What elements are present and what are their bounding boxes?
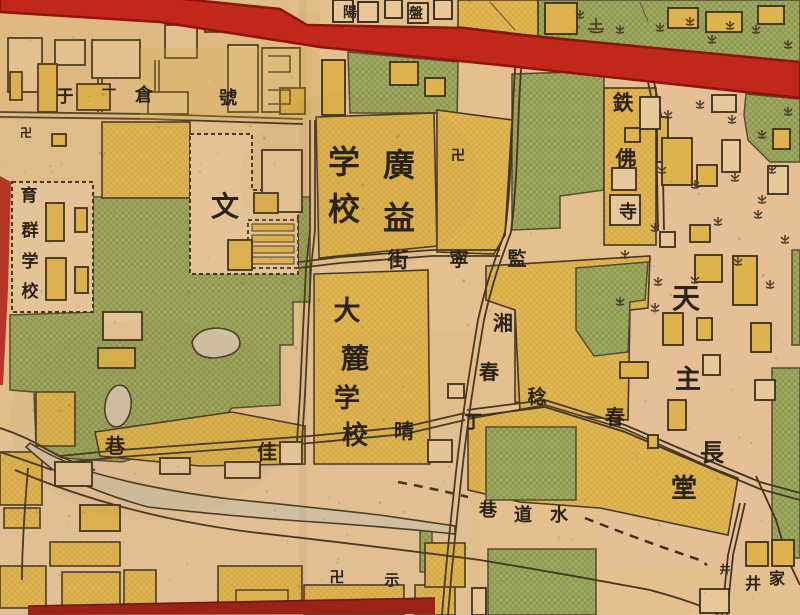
svg-text:佛: 佛: [615, 147, 637, 171]
svg-text:街: 街: [387, 248, 409, 272]
svg-text:井: 井: [720, 562, 731, 576]
svg-text:堂: 堂: [671, 473, 697, 503]
svg-text:一: 一: [102, 82, 116, 98]
svg-text:天: 天: [672, 283, 700, 314]
svg-text:佳: 佳: [257, 440, 277, 464]
svg-text:鉄: 鉄: [613, 91, 634, 115]
svg-text:于: 于: [57, 87, 74, 106]
svg-text:家: 家: [769, 569, 786, 588]
svg-text:陽: 陽: [343, 4, 357, 20]
svg-text:監: 監: [507, 247, 526, 270]
svg-text:学: 学: [22, 251, 39, 271]
svg-text:晴: 晴: [394, 419, 414, 443]
svg-text:廣: 廣: [383, 147, 415, 183]
svg-text:水: 水: [550, 504, 569, 525]
svg-text:倉: 倉: [134, 84, 154, 105]
svg-text:示: 示: [384, 572, 399, 589]
svg-text:主: 主: [675, 364, 701, 394]
svg-text:巷: 巷: [104, 434, 126, 458]
svg-text:益: 益: [383, 200, 415, 236]
svg-text:校: 校: [328, 191, 360, 227]
svg-text:長: 長: [700, 440, 725, 467]
svg-text:巷: 巷: [478, 500, 498, 520]
svg-text:校: 校: [342, 420, 369, 450]
svg-text:寺: 寺: [619, 202, 637, 222]
svg-text:学: 学: [328, 144, 360, 180]
svg-text:稔: 稔: [527, 385, 546, 408]
svg-text:育: 育: [21, 185, 38, 205]
svg-text:卍: 卍: [451, 147, 465, 163]
svg-text:麓: 麓: [341, 343, 369, 374]
svg-text:校: 校: [22, 281, 40, 301]
svg-text:盤: 盤: [409, 5, 424, 21]
svg-text:丁: 丁: [464, 412, 482, 432]
svg-text:井: 井: [745, 574, 761, 593]
svg-text:寜: 寜: [449, 248, 468, 271]
svg-text:號: 號: [219, 88, 237, 108]
svg-text:湘: 湘: [493, 311, 513, 335]
svg-text:文: 文: [211, 190, 239, 222]
svg-text:群: 群: [22, 220, 39, 240]
svg-text:大: 大: [334, 296, 361, 326]
svg-text:学: 学: [334, 383, 360, 413]
svg-text:卍: 卍: [329, 569, 344, 586]
svg-text:春: 春: [478, 360, 500, 384]
svg-text:春: 春: [604, 405, 626, 429]
svg-text:道: 道: [514, 504, 532, 525]
svg-text:卍: 卍: [20, 126, 32, 140]
